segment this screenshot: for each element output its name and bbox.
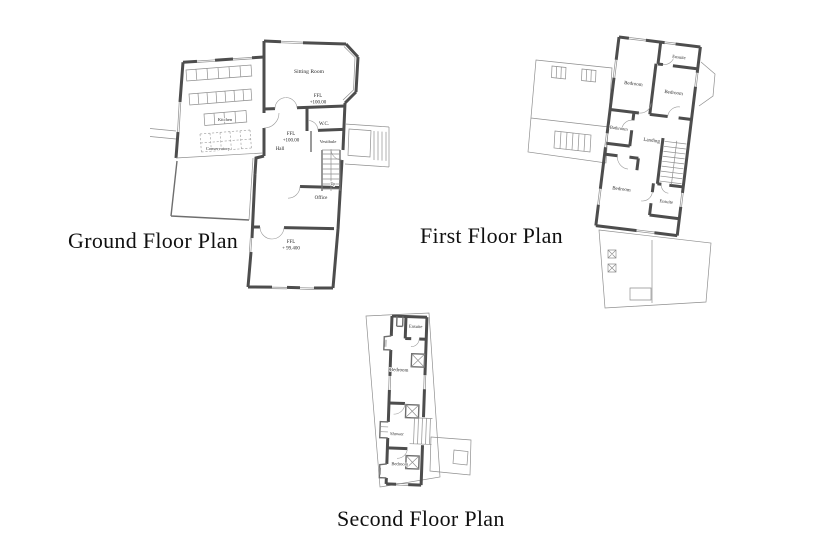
first-room-labels: Bedroom Ensuite Bedroom Landing Bathroom… — [601, 47, 690, 205]
room-label-ensuite: Ensuite — [672, 54, 686, 61]
room-label-ensuite: Ensuite — [659, 198, 673, 205]
skylight — [582, 69, 597, 82]
rooflight-icon — [608, 250, 616, 258]
stairs-icon — [660, 139, 687, 185]
ffl-value: +100.00 — [283, 139, 300, 144]
rooflight-icon — [608, 264, 616, 272]
room-label-bathroom: Bathroom — [610, 125, 629, 132]
room-label-bedroom: Bedroom — [612, 186, 631, 193]
ffl-value: +100.00 — [310, 101, 327, 106]
first-roof-skylights — [528, 60, 612, 163]
first-walls — [596, 37, 701, 236]
stairs-up-label: Up — [331, 181, 336, 186]
chimney — [630, 288, 651, 300]
room-label-wc: W.C. — [319, 122, 329, 127]
floor-plans-canvas: Sitting Room FFL +100.00 W.C. FFL +100.0… — [0, 0, 830, 553]
second-floor-plan: Ensuite Bedroom Shower Bedroom — [366, 313, 471, 487]
second-floor-plan-title: Second Floor Plan — [337, 506, 505, 532]
room-label-bedroom: Bedroom — [624, 81, 643, 88]
first-floor-plan: Bedroom Ensuite Bedroom Landing Bathroom… — [528, 36, 715, 308]
room-label-landing: Landing — [643, 138, 661, 145]
room-label-shower: Shower — [390, 431, 404, 436]
floor-plan-sheet: Sitting Room FFL +100.00 W.C. FFL +100.0… — [0, 0, 830, 553]
skylight — [554, 131, 591, 152]
porch-steps — [345, 124, 389, 167]
ffl-label: FFL — [314, 94, 323, 99]
ffl-label: FFL — [287, 240, 296, 245]
room-label-vestibule: Vestibule — [320, 139, 337, 144]
room-label-bedroom: Bedroom — [390, 368, 409, 374]
stairs-icon — [410, 418, 433, 445]
room-label-ensuite: Ensuite — [409, 324, 423, 329]
room-label-bedroom: Bedroom — [664, 90, 683, 97]
room-label-sitting-room: Sitting Room — [294, 69, 325, 75]
room-label-kitchen: Kitchen — [218, 117, 233, 122]
first-floor-plan-title: First Floor Plan — [420, 223, 563, 249]
second-door-arcs — [392, 338, 419, 459]
first-roof-below — [599, 230, 711, 308]
ground-door-arcs — [260, 98, 342, 239]
room-label-conservatory: Conservatory — [206, 146, 231, 151]
ffl-value: + 99.400 — [282, 247, 300, 252]
skylight — [552, 66, 567, 79]
room-label-bedroom: Bedroom — [391, 461, 408, 467]
ground-floor-plan-title: Ground Floor Plan — [68, 228, 238, 254]
second-room-labels: Ensuite Bedroom Shower Bedroom — [386, 323, 422, 467]
first-bay-roof-outline — [699, 62, 715, 106]
room-label-hall: Hall — [276, 147, 285, 152]
room-label-office: Office — [315, 196, 328, 201]
ffl-label: FFL — [287, 132, 296, 137]
